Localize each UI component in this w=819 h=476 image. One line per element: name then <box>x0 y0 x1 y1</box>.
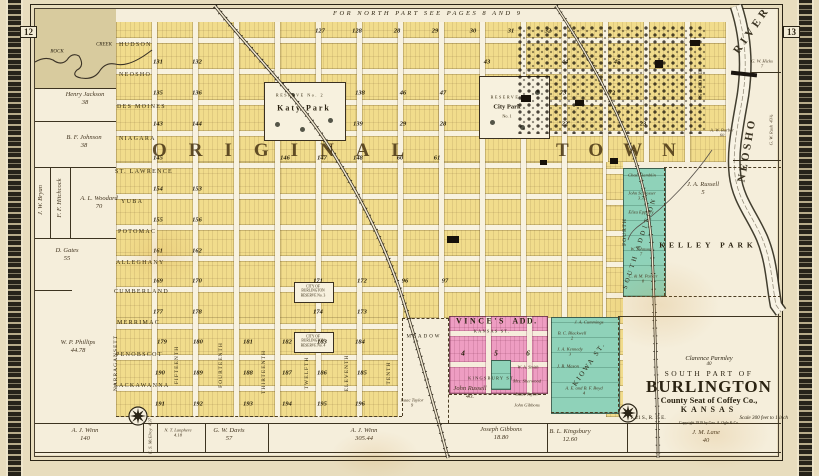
block-number: 195 <box>317 401 327 408</box>
parcel-owner-label: J. W. Bryan <box>37 185 45 215</box>
city-park-no-label: No. 1 <box>502 113 511 118</box>
parcel-owner-label: Chas. Hamblin1 <box>628 173 656 184</box>
block-number: 44 <box>562 59 569 66</box>
block-number: 96 <box>402 278 409 285</box>
block-number: 47 <box>440 90 447 97</box>
title-owner-acres: 40 <box>630 362 788 367</box>
block-number: 174 <box>313 309 323 316</box>
block-number: 60 <box>397 155 404 162</box>
street-label-ew: YUBA <box>121 199 143 205</box>
city-park-label: City Park <box>493 104 520 111</box>
street-label-ew: NIAGARA <box>119 136 156 142</box>
parcel-owner-label: John Gibbons <box>514 402 540 407</box>
title-state: KANSAS <box>630 405 788 414</box>
parcel-owner-label: J. M. Lane40 <box>692 429 720 445</box>
city-park-reserve-label: RESERVE <box>491 94 520 99</box>
block-number: 169 <box>153 278 163 285</box>
vince-block-number: 5 <box>494 349 498 358</box>
parcel-owner-label: B. C. Blackwell2 <box>558 331 587 342</box>
block-number: 138 <box>355 90 365 97</box>
street-label-ew: MERRIMAC <box>117 320 160 326</box>
street-label-ns: NARRAGANSETT <box>113 335 119 391</box>
block-number: 161 <box>153 248 163 255</box>
street-label-ns: FIFTEENTH <box>174 346 180 384</box>
street-label-ew: NEOSHO <box>119 72 151 78</box>
block-number: 128 <box>352 28 362 35</box>
page-number-left: 12 <box>20 26 37 38</box>
block-number: 188 <box>243 370 253 377</box>
boundary-line-dashed <box>448 318 449 423</box>
block-number: 30 <box>470 28 477 35</box>
parcel-owner-label: A. E. and B. F. Boyd4 <box>565 386 602 397</box>
boundary-line <box>157 423 158 452</box>
title-block: Clarence Parmley 40 SOUTH PART OF BURLIN… <box>630 355 788 425</box>
rock-creek-label-1: ROCK <box>50 50 63 55</box>
city-reserve-label: CITY OFBURLINGTONRESERVE No. 4 <box>301 335 326 348</box>
block-number: 189 <box>193 370 203 377</box>
parcel-owner-label: Eliza Epperly <box>628 209 653 214</box>
street-label-ns: FOURTEENTH <box>218 342 224 388</box>
vinces-add-label-1: VINCE'S <box>456 317 506 326</box>
parcel-owner-label: Isaac Taylor9 <box>401 398 424 409</box>
boundary-line-dashed <box>623 296 664 297</box>
block-number: 194 <box>282 401 292 408</box>
boundary-line <box>750 72 781 73</box>
block-number: 154 <box>153 186 163 193</box>
block-number: 179 <box>157 339 167 346</box>
parcel-owner-label: G. W. Hicks7 <box>751 59 773 70</box>
block-number: 173 <box>357 309 367 316</box>
boundary-line <box>627 423 628 452</box>
block-number: 97 <box>442 278 449 285</box>
block-number: 131 <box>153 59 163 66</box>
street-label-ew: ALLEGHANY <box>116 260 165 266</box>
decorative-border-right <box>797 0 814 476</box>
block-number: 196 <box>355 401 365 408</box>
block-number: 162 <box>192 248 202 255</box>
block-number: 139 <box>353 121 363 128</box>
katy-park-label: Katy Park <box>277 104 331 113</box>
street-label-ns: THIRTEENTH <box>261 350 267 394</box>
boundary-line <box>143 423 144 452</box>
parcel-owner-label: A. J. Winn305.44 <box>351 427 378 443</box>
block-number: 146 <box>280 155 290 162</box>
parcel-owner-label: Joseph Gibbons18.80 <box>480 426 522 442</box>
street-label-ew: DES MOINES <box>117 104 166 110</box>
parcel-owner-label: B. L. Kingsbury12.60 <box>549 428 590 444</box>
plat-map-page: 12 13 <box>0 0 819 476</box>
boundary-line <box>205 423 206 452</box>
block-number: 181 <box>243 339 253 346</box>
parcel-owner-label: C. & M. Parker8 <box>629 274 658 285</box>
parcel-owner-label: J. A. Cummings <box>574 319 603 324</box>
kansas-street-label: KANSAS ST. <box>474 329 511 334</box>
railroad-main <box>215 6 448 458</box>
boundary-line <box>70 167 71 238</box>
street-label-ns: FOURTH <box>622 218 628 246</box>
parcel-owner-label: Mrs. Sherwood <box>513 378 541 383</box>
street-label-ns: SECOND <box>698 69 704 97</box>
block-number: 143 <box>153 121 163 128</box>
block-number: 136 <box>192 90 202 97</box>
vince-block-number: 4 <box>461 349 465 358</box>
street-label-ew: HUDSON <box>119 42 152 48</box>
boundary-line-dashed <box>551 412 627 413</box>
boundary-line <box>618 316 781 317</box>
street-label-ew: LACKAWANNA <box>114 383 170 389</box>
rock-creek-label-2: CREEK <box>96 43 112 48</box>
boundary-line <box>547 423 548 452</box>
parcel-owner-label: W. P. Phillips44.78 <box>61 339 96 355</box>
boundary-line-dashed <box>618 317 619 412</box>
boundary-line <box>50 167 51 238</box>
street-label-ns: TWELFTH <box>304 357 310 390</box>
block-number: 61 <box>434 155 441 162</box>
parcel-owner-label: A. L. Woodard70 <box>80 195 117 211</box>
block-number: 132 <box>192 59 202 66</box>
parcel-owner-label: Henry Jackson38 <box>66 91 105 107</box>
parcel-owner-label: W. Johnson7 <box>630 247 651 258</box>
boundary-line <box>35 238 116 239</box>
block-number: 73 <box>560 90 567 97</box>
block-number: 32 <box>545 28 552 35</box>
parcel-owner-label: J. A. Kennedy3 <box>557 347 582 358</box>
title-copyright: Copyright 1919 by Geo. A. Ogle & Co. <box>630 421 788 425</box>
block-number: 127 <box>315 28 325 35</box>
block-number: 177 <box>153 309 163 316</box>
boundary-line-dashed <box>664 296 781 297</box>
kelley-park-label: KELLEY PARK <box>659 241 757 250</box>
block-number: 170 <box>192 278 202 285</box>
block-number: 190 <box>155 370 165 377</box>
block-number: 184 <box>355 339 365 346</box>
parcel-owner-label: B. F. Johnson38 <box>66 134 101 150</box>
parcel-owner-label: E. S. McElroy 4.37 <box>147 418 152 454</box>
block-number: 192 <box>193 401 203 408</box>
street-label-ew: POTOMAC <box>118 229 156 235</box>
meadow-street-label: MEADOW <box>406 335 441 340</box>
block-number: 186 <box>317 370 327 377</box>
parcel-owner-label: A. J. Winn140 <box>72 427 99 443</box>
block-number: 22 <box>562 121 569 128</box>
page-number-right: 13 <box>783 26 800 38</box>
title-township: T. 21 S., R. 15 E. <box>630 415 666 421</box>
block-number: 29 <box>432 28 439 35</box>
block-number: 171 <box>313 278 323 285</box>
boundary-line-dashed <box>116 416 402 417</box>
block-number: 135 <box>153 90 163 97</box>
title-owner: Clarence Parmley <box>630 355 788 362</box>
katy-park-reserve-label: RESERVE No. 2 <box>276 92 324 97</box>
parcel-owner-label: Isaac Taylor <box>516 391 539 396</box>
block-number: 185 <box>357 370 367 377</box>
parcel-owner-label: G. W. Davis57 <box>213 427 244 443</box>
block-number: 147 <box>317 155 327 162</box>
block-number: 43 <box>484 59 491 66</box>
boundary-line-dashed <box>664 167 781 168</box>
street-label-ns: ELEVENTH <box>344 355 350 392</box>
block-number: 31 <box>508 28 515 35</box>
parcel-owner-label: N. T. Lanphere4.18 <box>164 428 191 439</box>
block-number: 46 <box>400 90 407 97</box>
block-number: 193 <box>243 401 253 408</box>
block-number: 180 <box>193 339 203 346</box>
street-label-ew: CUMBERLAND <box>114 289 169 295</box>
title-city: BURLINGTON <box>630 378 788 395</box>
title-seat: County Seat of Coffey Co., <box>630 395 788 405</box>
boundary-line-dashed <box>402 318 449 319</box>
title-scale: Scale 300 feet to 1 inch <box>739 415 788 421</box>
compass-rose-icon <box>128 406 148 426</box>
block-number: 45 <box>614 59 621 66</box>
boundary-line-dashed <box>664 168 665 296</box>
parcel-owner-label: J. A. Russell5 <box>687 181 719 197</box>
boundary-line <box>268 423 269 452</box>
vince-block-number: 6 <box>526 349 530 358</box>
parcel-owner-label: D. Gates55 <box>55 247 78 263</box>
boundary-line <box>35 167 116 168</box>
block-number: 172 <box>357 278 367 285</box>
parcel-owner-label: John Schlosser3.32 <box>628 191 656 202</box>
original-town-label-east: TOWN <box>556 140 696 162</box>
block-number: 28 <box>440 121 447 128</box>
block-number: 29 <box>400 121 407 128</box>
north-part-note: FOR NORTH PART SEE PAGES 8 AND 9 <box>333 10 522 17</box>
parcel-owner-label: G. W. Rush 43¾ <box>768 115 773 146</box>
block-number: 153 <box>192 186 202 193</box>
city-reserve-label: CITY OFBURLINGTONRESERVE No. 3 <box>301 285 326 298</box>
decorative-border-left <box>6 0 23 476</box>
parcel-owner-label: J. B. Mason <box>557 363 579 368</box>
vinces-add-label-2: ADD. <box>512 317 537 326</box>
parcel-owner-label: John Russell40. <box>453 385 486 401</box>
block-number: 156 <box>192 217 202 224</box>
street-label-ew: PENOBSCOT <box>116 352 163 358</box>
block-number: 187 <box>282 370 292 377</box>
block-number: 191 <box>155 401 165 408</box>
boundary-line <box>35 290 72 291</box>
block-number: 145 <box>153 155 163 162</box>
block-number: 178 <box>192 309 202 316</box>
block-number: 155 <box>153 217 163 224</box>
block-number: 148 <box>353 155 363 162</box>
parcel-owner-label: W. A. Smith <box>517 364 538 369</box>
boundary-line <box>35 88 116 89</box>
kingsbury-street-label: KINGSBURY ST. <box>468 376 516 381</box>
street-label-ns: TENTH <box>386 361 392 384</box>
block-number: 144 <box>192 121 202 128</box>
parcel-owner-label: F. F. Hitchcock <box>56 178 64 217</box>
boundary-line <box>35 121 116 122</box>
block-number: 28 <box>394 28 401 35</box>
block-number: 23 <box>640 121 647 128</box>
block-number: 72 <box>609 90 616 97</box>
block-number: 182 <box>282 339 292 346</box>
parcel-owner-label: A. W. Barber60 <box>710 128 734 139</box>
street-label-ew: ST. LAWRENCE <box>115 169 173 175</box>
